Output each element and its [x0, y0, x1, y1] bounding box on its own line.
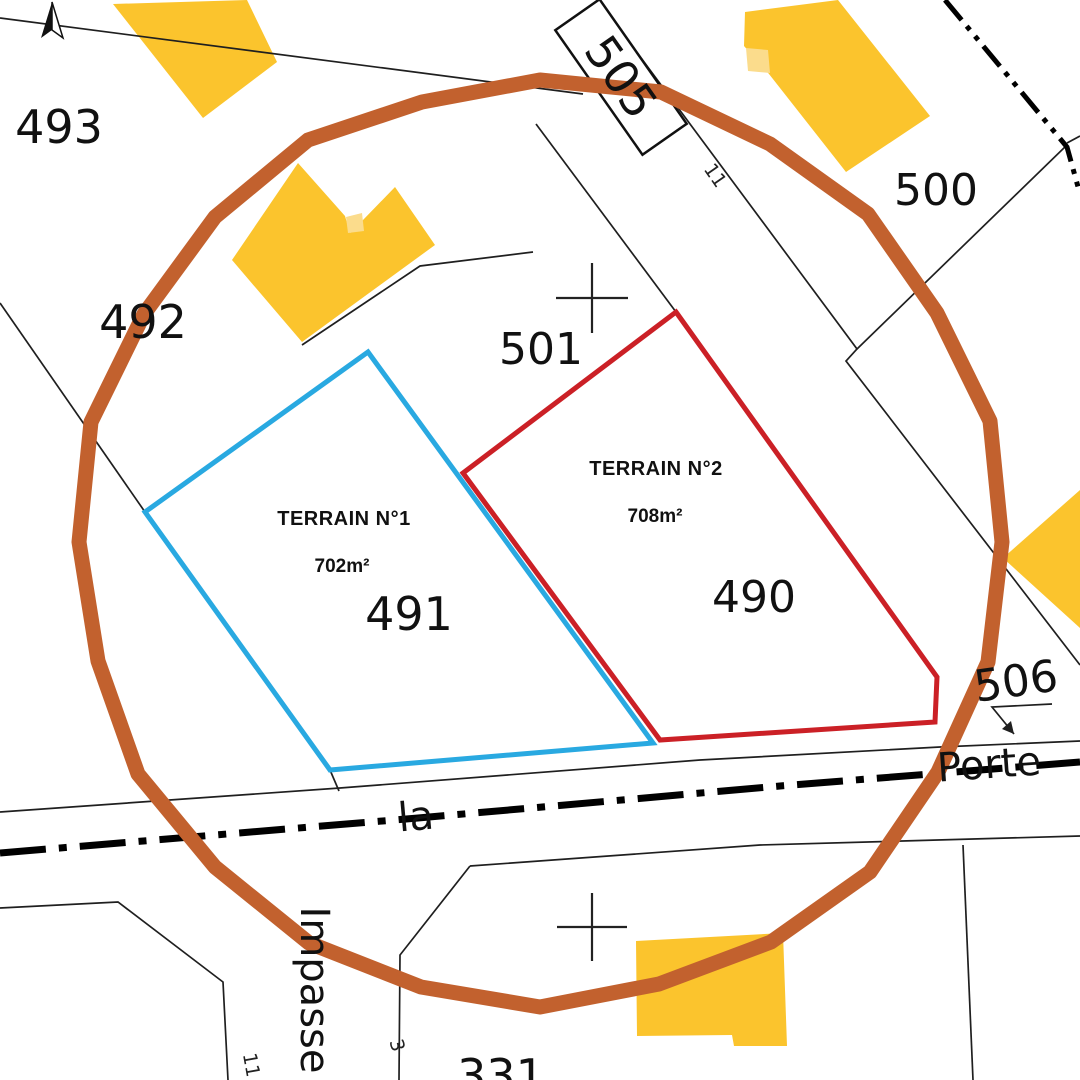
building-topright-annex: [746, 48, 770, 73]
terrain1-name: TERRAIN N°1: [277, 508, 411, 530]
parcel-label-501: 501: [499, 324, 583, 375]
terrain2-name: TERRAIN N°2: [589, 458, 723, 480]
street-label-impasse: Impasse: [291, 907, 337, 1074]
parcel-label-492: 492: [99, 295, 187, 349]
house-number-11-bottom: 11: [238, 1051, 264, 1079]
terrain2-area: 708m²: [628, 506, 683, 527]
map-canvas: 493 492 501 500 490 491 506 331 505 11 1…: [0, 0, 1080, 1080]
parcel-label-500: 500: [894, 165, 978, 216]
street-label-la: la: [396, 793, 435, 842]
cadastral-map: 493 492 501 500 490 491 506 331 505 11 1…: [0, 0, 1080, 1080]
street-label-porte: Porte: [936, 738, 1043, 791]
parcel-label-490: 490: [712, 572, 796, 623]
parcel-label-491: 491: [365, 587, 453, 641]
parcel-label-331: 331: [457, 1049, 545, 1080]
terrain1-area: 702m²: [315, 556, 370, 577]
parcel-label-493: 493: [15, 100, 103, 154]
map-background: [0, 0, 1080, 1080]
